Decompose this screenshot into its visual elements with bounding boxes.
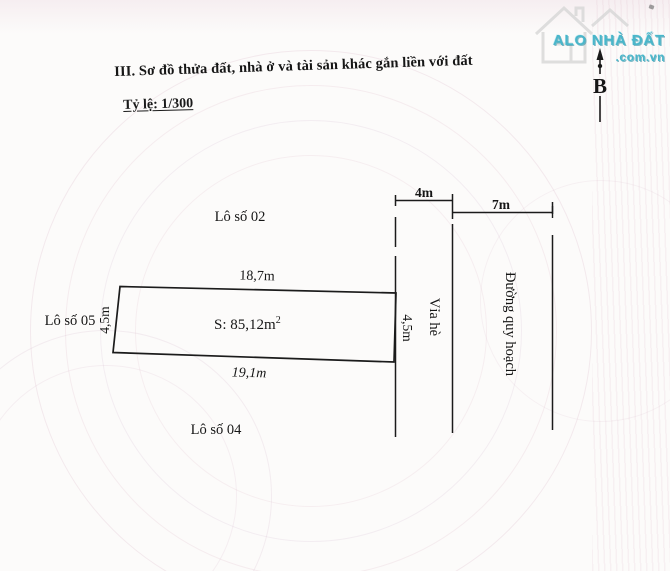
parcel-left-dimension-label: 4,5m: [97, 306, 112, 334]
adjacent-lot-left-label: Lô số 05: [45, 313, 96, 329]
sidewalk-label: Vỉa hè: [426, 298, 442, 336]
parcel-area-superscript: 2: [276, 315, 281, 326]
planned-road-label: Đường quy hoạch: [502, 272, 518, 377]
road-width-label: 7m: [492, 197, 511, 212]
plot-diagram: 4m 7m Lô số 02 Lô số 05 Lô số 04 18,7m 1…: [0, 0, 670, 571]
adjacent-lot-top-label: Lô số 02: [215, 209, 266, 225]
sidewalk-width-label: 4m: [415, 185, 434, 200]
parcel-top-dimension-label: 18,7m: [239, 269, 275, 285]
parcel-area-label: S: 85,12m2: [214, 315, 281, 333]
north-label: B: [593, 74, 607, 98]
certificate-diagram-page: III. Sơ đồ thửa đất, nhà ở và tài sản kh…: [0, 0, 670, 571]
adjacent-lot-bottom-label: Lô số 04: [191, 422, 243, 438]
parcel-right-dimension-label: 4,5m: [400, 314, 415, 342]
parcel-bottom-dimension-label: 19,1m: [231, 366, 266, 382]
diagram-lines: [113, 48, 604, 437]
